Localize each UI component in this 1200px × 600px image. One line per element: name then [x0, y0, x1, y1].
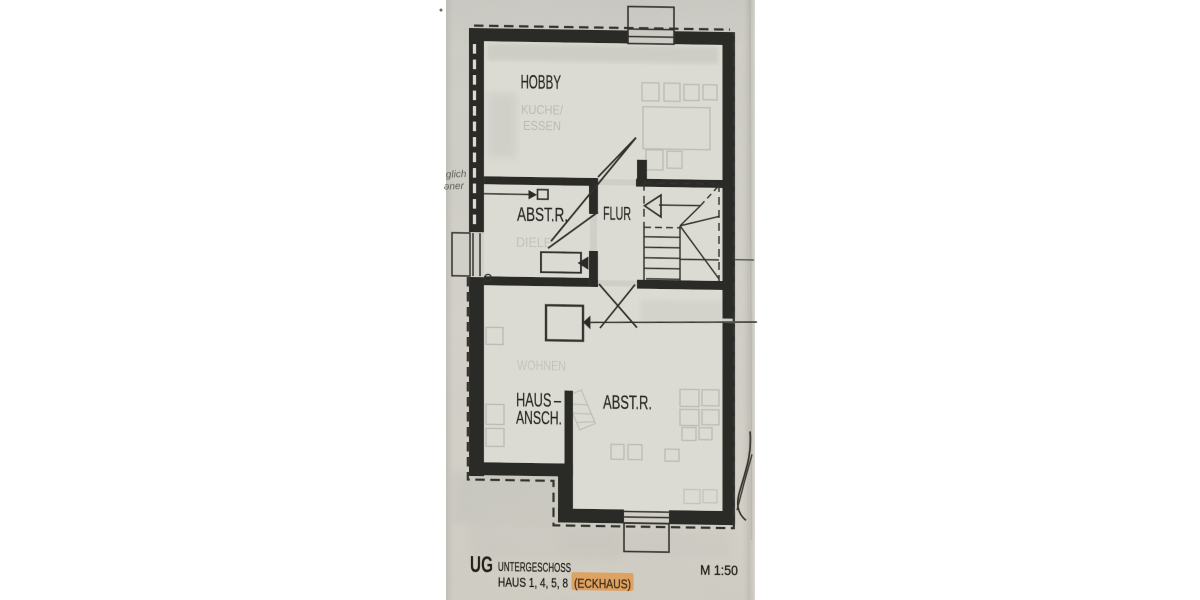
svg-text:HAUS 1, 4, 5, 8: HAUS 1, 4, 5, 8 — [498, 574, 568, 590]
svg-text:əner: əner — [444, 181, 465, 193]
svg-text:WOHNEN: WOHNEN — [517, 357, 566, 374]
svg-text:(ECKHAUS): (ECKHAUS) — [574, 576, 631, 592]
svg-text:M 1:50: M 1:50 — [700, 563, 738, 579]
svg-text:ABST.R.: ABST.R. — [603, 392, 652, 415]
svg-text:ESSEN: ESSEN — [523, 118, 561, 134]
svg-text:UG: UG — [470, 551, 493, 577]
svg-text:DIELE: DIELE — [516, 234, 552, 251]
svg-text:glich: glich — [446, 169, 468, 181]
svg-text:ANSCH.: ANSCH. — [516, 408, 562, 429]
svg-text:FLUR: FLUR — [603, 204, 631, 224]
svg-text:KUCHE/: KUCHE/ — [521, 102, 563, 118]
svg-text:UNTERGESCHOSS: UNTERGESCHOSS — [498, 559, 571, 575]
svg-text:ABST.R.: ABST.R. — [517, 204, 568, 227]
svg-text:HOBBY: HOBBY — [521, 71, 562, 94]
